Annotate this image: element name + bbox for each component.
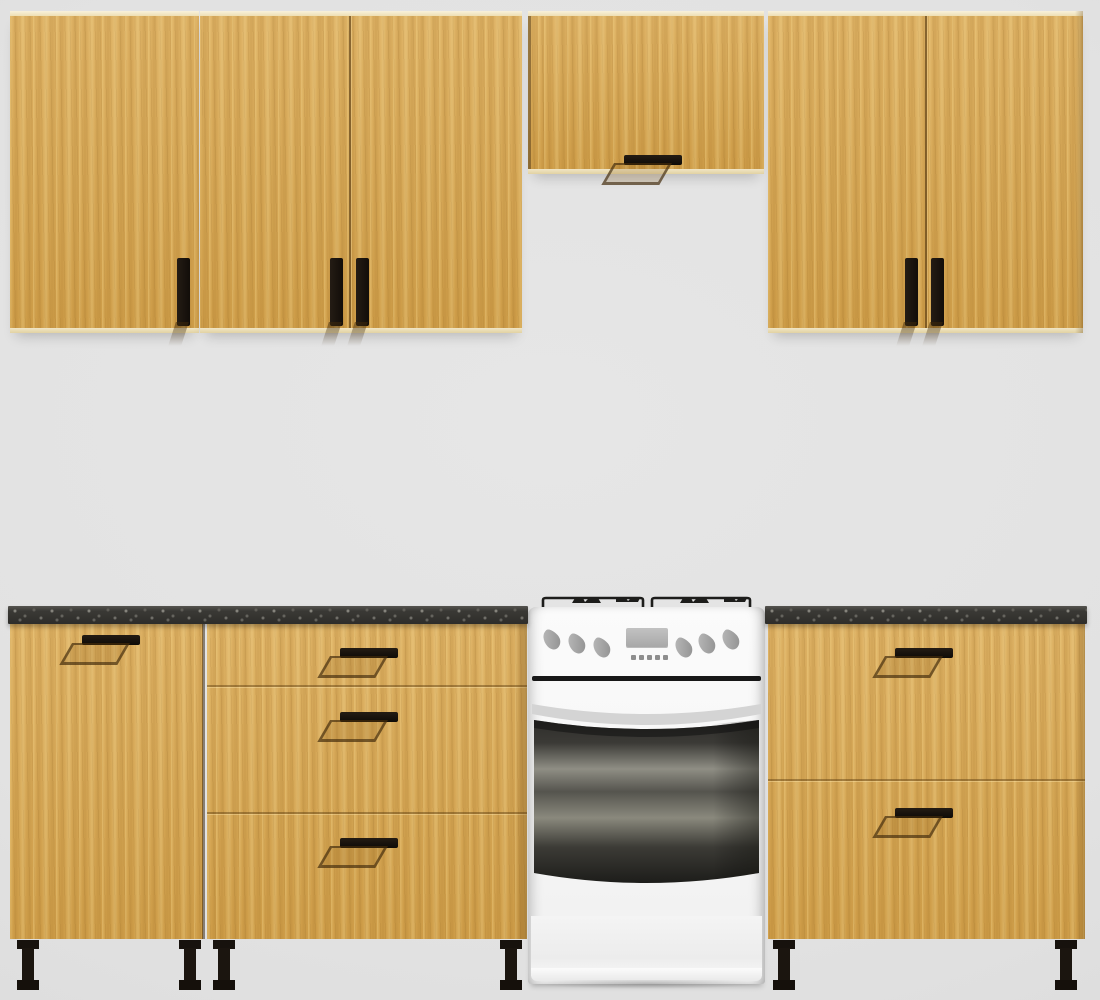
countertop-left xyxy=(8,606,528,624)
plinth-leg xyxy=(179,940,201,990)
base-cabinet-door xyxy=(10,624,203,939)
countertop-right xyxy=(765,606,1087,624)
cooker-knob xyxy=(694,631,719,657)
cooker-knob xyxy=(564,631,589,657)
plinth-leg xyxy=(1055,940,1077,990)
cooker-button xyxy=(639,655,644,660)
plinth-leg xyxy=(213,940,235,990)
drawer-split-line xyxy=(207,812,527,814)
cooker-button xyxy=(663,655,668,660)
drawer-split-line xyxy=(768,779,1085,781)
cooker-knob xyxy=(671,635,696,661)
oven-handle-curve xyxy=(532,704,761,725)
handle-shadow xyxy=(168,322,189,346)
handle-shadow xyxy=(601,163,672,185)
handle-shadow xyxy=(317,846,388,868)
door-handle xyxy=(931,258,944,326)
drawer-handle xyxy=(883,648,955,680)
cabinet-side-shade xyxy=(1075,11,1083,333)
drawer-split-line xyxy=(207,685,527,687)
cooker-storage-drawer xyxy=(531,916,762,976)
cabinet-gap-line xyxy=(202,624,205,939)
cooker xyxy=(528,607,765,984)
cabinet-bottom-edge xyxy=(10,328,199,333)
cabinet-side-shade xyxy=(528,16,531,169)
cooker-button xyxy=(647,655,652,660)
wall-cabinet-left-single xyxy=(10,11,199,333)
cabinet-side-shade xyxy=(1076,624,1085,939)
wall-cabinet-right-double xyxy=(768,11,1083,333)
cabinet-side-shade xyxy=(514,624,527,939)
cooker-knob xyxy=(539,627,564,653)
cooker-button xyxy=(655,655,660,660)
plinth-leg xyxy=(773,940,795,990)
wall-cabinet-left-double xyxy=(200,11,522,333)
kitchen-render xyxy=(0,0,1100,1000)
oven-door xyxy=(528,680,765,923)
door-handle xyxy=(177,258,190,326)
drawer-handle xyxy=(328,838,400,870)
handle-shadow xyxy=(896,322,917,346)
drawer-handle xyxy=(883,808,955,840)
wall-cabinet-over-cooker xyxy=(528,11,764,174)
plinth-leg xyxy=(17,940,39,990)
handle-shadow xyxy=(872,816,943,838)
door-handle xyxy=(612,155,684,187)
base-cabinet-3-drawers xyxy=(207,624,527,939)
door-handle xyxy=(70,635,142,667)
cooker-knob xyxy=(718,627,743,653)
cooker-floor-shadow xyxy=(534,980,760,989)
cooker-knob xyxy=(589,635,614,661)
drawer-handle xyxy=(328,712,400,744)
door-handle xyxy=(330,258,343,326)
handle-shadow xyxy=(317,656,388,678)
drawer-handle xyxy=(328,648,400,680)
handle-shadow xyxy=(317,720,388,742)
plinth-leg xyxy=(500,940,522,990)
cabinet-top-edge xyxy=(200,11,522,16)
gas-burner-grates xyxy=(528,595,765,609)
door-handle xyxy=(905,258,918,326)
cooker-button xyxy=(631,655,636,660)
cooker-display xyxy=(626,628,668,647)
door-split-line xyxy=(349,16,351,328)
cabinet-top-edge xyxy=(528,11,764,16)
door-split-line xyxy=(925,16,927,328)
door-handle xyxy=(356,258,369,326)
handle-shadow xyxy=(872,656,943,678)
handle-shadow xyxy=(321,322,342,346)
cabinet-top-edge xyxy=(10,11,199,16)
base-cabinet-2-drawers xyxy=(768,624,1085,939)
handle-shadow xyxy=(59,643,130,665)
